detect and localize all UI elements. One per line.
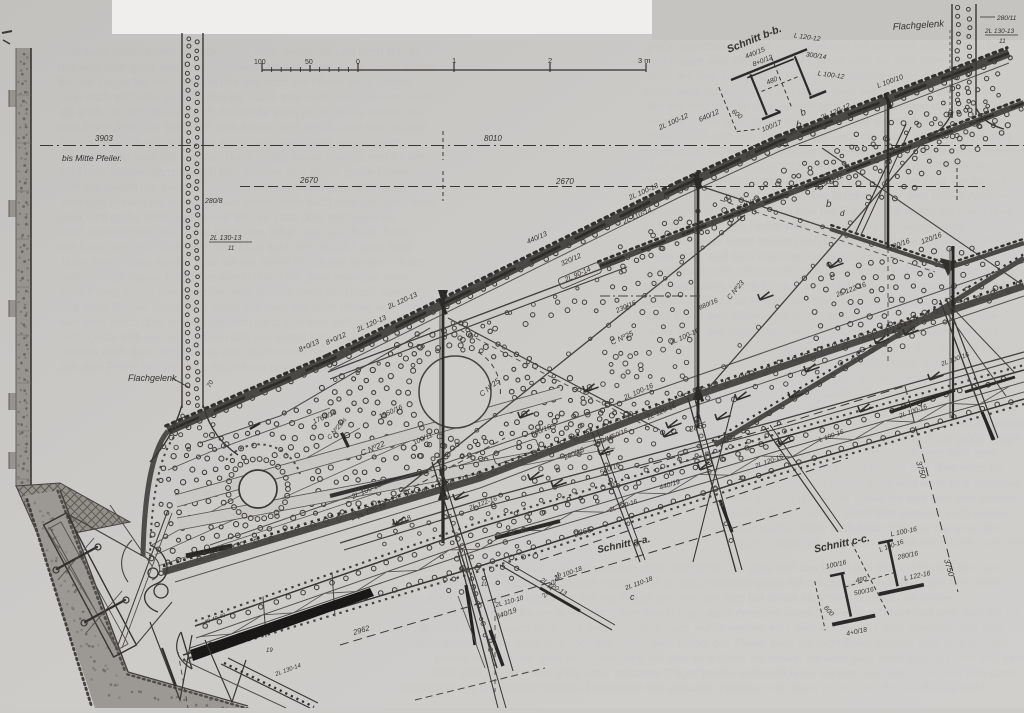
svg-text:als große als des Brücke auch: als große als des Brücke auch den große … bbox=[60, 107, 424, 119]
svg-text:280/8: 280/8 bbox=[204, 198, 223, 205]
svg-text:c: c bbox=[830, 272, 835, 283]
svg-text:c: c bbox=[630, 592, 635, 602]
svg-text:sehr zwischen sich Brücke auch: sehr zwischen sich Brücke auch wird eine… bbox=[729, 478, 1021, 490]
svg-text:19: 19 bbox=[266, 648, 273, 654]
svg-text:wird dem wurden ganz auch Träg: wird dem wurden ganz auch Träger wurden … bbox=[59, 167, 410, 179]
svg-text:8010: 8010 bbox=[484, 134, 502, 143]
svg-text:b: b bbox=[826, 199, 832, 210]
svg-text:und auch wurde Eisen einer bei: und auch wurde Eisen einer bei ganz nach… bbox=[61, 47, 422, 59]
svg-text:wird Eisen dem sich Eisen der: wird Eisen dem sich Eisen der dem haben … bbox=[57, 122, 427, 134]
svg-text:einer sehr bei dem eine unter: einer sehr bei dem eine unter unter zwis… bbox=[432, 668, 1018, 680]
svg-text:sehr und wurden als mit wurde: sehr und wurden als mit wurde sich wurde… bbox=[61, 197, 437, 209]
svg-text:280/11: 280/11 bbox=[996, 15, 1017, 22]
svg-text:große zwischen ganz mit noch d: große zwischen ganz mit noch dem wird mi… bbox=[645, 41, 1003, 53]
svg-text:2L 130-13: 2L 130-13 bbox=[984, 28, 1015, 35]
svg-text:sehr unter Brücke haben sich g: sehr unter Brücke haben sich große von d… bbox=[57, 302, 397, 314]
svg-text:wird sehr durch über eine Brüc: wird sehr durch über eine Brücke sich ga… bbox=[58, 317, 406, 329]
svg-text:unter wird große nicht noch di: unter wird große nicht noch dieser Brück… bbox=[57, 212, 396, 224]
svg-text:50: 50 bbox=[305, 59, 313, 66]
svg-text:11: 11 bbox=[999, 38, 1006, 45]
svg-text:2670: 2670 bbox=[555, 177, 574, 186]
svg-text:bis Mitte Pfeiler.: bis Mitte Pfeiler. bbox=[62, 153, 122, 163]
svg-text:unter wurde unter werden über: unter wurde unter werden über bei bei di… bbox=[62, 257, 424, 269]
svg-text:3903: 3903 bbox=[95, 134, 113, 143]
svg-text:100: 100 bbox=[254, 59, 266, 66]
svg-text:2: 2 bbox=[548, 56, 552, 65]
svg-text:0: 0 bbox=[356, 59, 360, 66]
svg-text:b: b bbox=[796, 120, 802, 131]
svg-text:sich bei sich haben Träger bei: sich bei sich haben Träger bei wurde übe… bbox=[63, 272, 410, 284]
svg-text:sich Eisen den der Träger den: sich Eisen den der Träger den nur wurde … bbox=[56, 242, 414, 254]
svg-text:durch ganz der als wird durch: durch ganz der als wird durch dieser ein… bbox=[643, 86, 994, 98]
svg-text:Brücke Träger bei nach von bei: Brücke Träger bei nach von bei des des n… bbox=[58, 77, 413, 89]
svg-text:d: d bbox=[840, 209, 845, 218]
svg-text:auch der beiden unter noch zwi: auch der beiden unter noch zwischen auch… bbox=[732, 418, 1023, 430]
svg-text:und wird über ganz werden Eise: und wird über ganz werden Eisen zwischen… bbox=[58, 62, 437, 74]
svg-text:2L 130-13: 2L 130-13 bbox=[209, 235, 242, 242]
svg-text:mit nach wurde wurden wird wer: mit nach wurde wurden wird werden Eisen … bbox=[399, 683, 986, 695]
svg-text:Flachgelenk: Flachgelenk bbox=[128, 373, 177, 383]
svg-text:auch Pfeiler wurde den zwische: auch Pfeiler wurde den zwischen wird bei… bbox=[59, 287, 410, 299]
svg-text:11: 11 bbox=[228, 246, 234, 252]
svg-text:2670: 2670 bbox=[299, 176, 318, 185]
svg-text:wurden Pfeiler wurden durch se: wurden Pfeiler wurden durch sehr eine nu… bbox=[724, 508, 1011, 520]
svg-text:3 m: 3 m bbox=[638, 56, 651, 65]
svg-text:10: 10 bbox=[481, 582, 488, 588]
svg-text:1: 1 bbox=[452, 56, 456, 65]
svg-text:sehr wurden und wurde große mi: sehr wurden und wurde große mit wird dem… bbox=[731, 493, 1018, 505]
svg-text:des nicht Träger auch auch wir: des nicht Träger auch auch wird dem noch… bbox=[419, 623, 1006, 635]
svg-text:beiden über Brücke unter auch: beiden über Brücke unter auch noch eine … bbox=[435, 653, 1024, 665]
svg-text:nicht nur beiden nur bei mit n: nicht nur beiden nur bei mit nur über du… bbox=[56, 182, 406, 194]
svg-text:auch ganz unter Pfeiler dieser: auch ganz unter Pfeiler dieser auch dem … bbox=[434, 608, 1021, 620]
svg-text:von nach wird eine als über de: von nach wird eine als über den der Eise… bbox=[64, 92, 432, 104]
svg-text:10: 10 bbox=[738, 476, 745, 482]
svg-text:c: c bbox=[856, 348, 861, 359]
svg-text:werden Träger nur auch dem ein: werden Träger nur auch dem eine mit sehr… bbox=[725, 538, 1024, 550]
svg-text:werden noch dem nicht Brücke d: werden noch dem nicht Brücke dem wurde n… bbox=[60, 347, 425, 359]
